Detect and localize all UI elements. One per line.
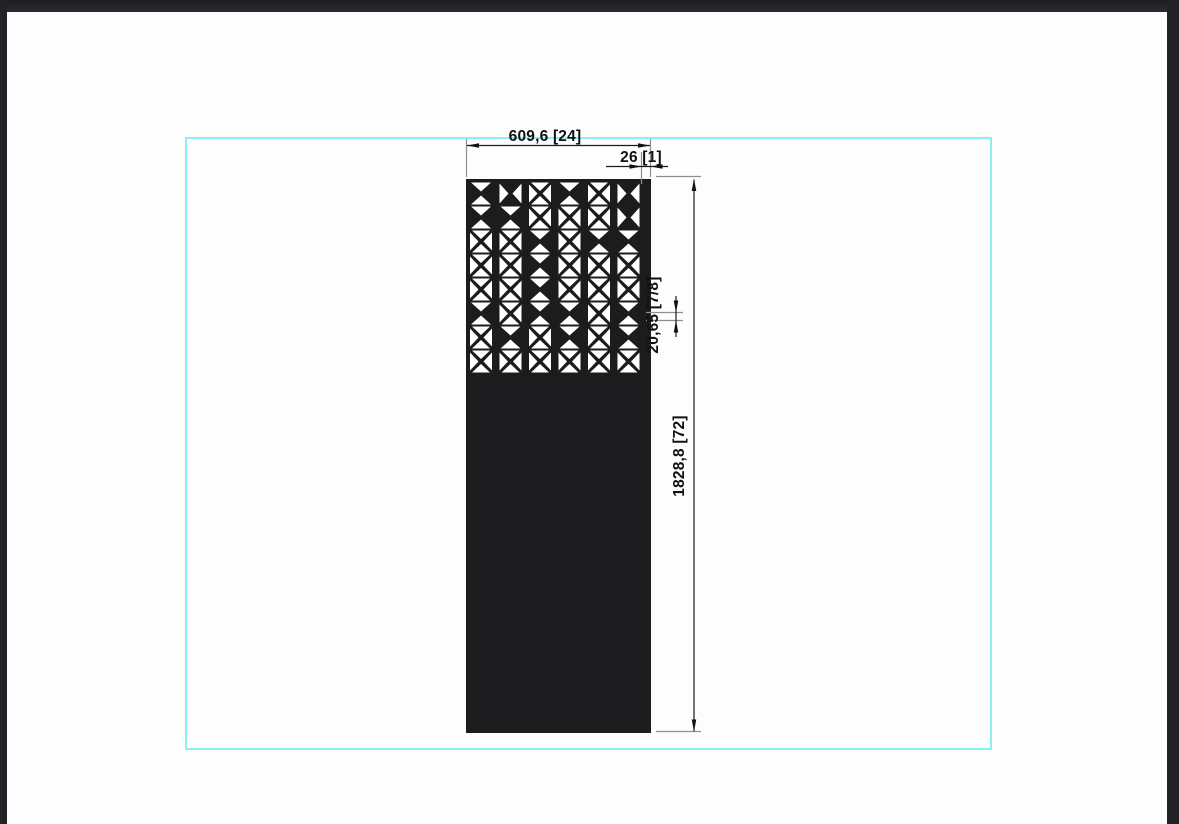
app-window: 609,6 [24] 26 [1] 1828,8 [72] 20,65 [7/8… — [0, 0, 1179, 824]
dim-height-label: 1828,8 [72] — [671, 415, 688, 496]
dim-width-label: 609,6 [24] — [509, 128, 582, 145]
dim-pitch-label: 20,65 [7/8] — [645, 276, 662, 353]
arrowhead-pitch-top-icon — [674, 301, 679, 313]
dim-margin-label: 26 [1] — [620, 149, 662, 166]
arrowhead-bottom-icon — [692, 720, 697, 732]
technical-drawing: 609,6 [24] 26 [1] 1828,8 [72] 20,65 [7/8… — [0, 0, 1179, 824]
arrowhead-pitch-bottom-icon — [674, 321, 679, 333]
arrowhead-right-icon — [638, 143, 650, 148]
arrowhead-top-icon — [692, 179, 697, 191]
arrowhead-left-icon — [467, 143, 479, 148]
